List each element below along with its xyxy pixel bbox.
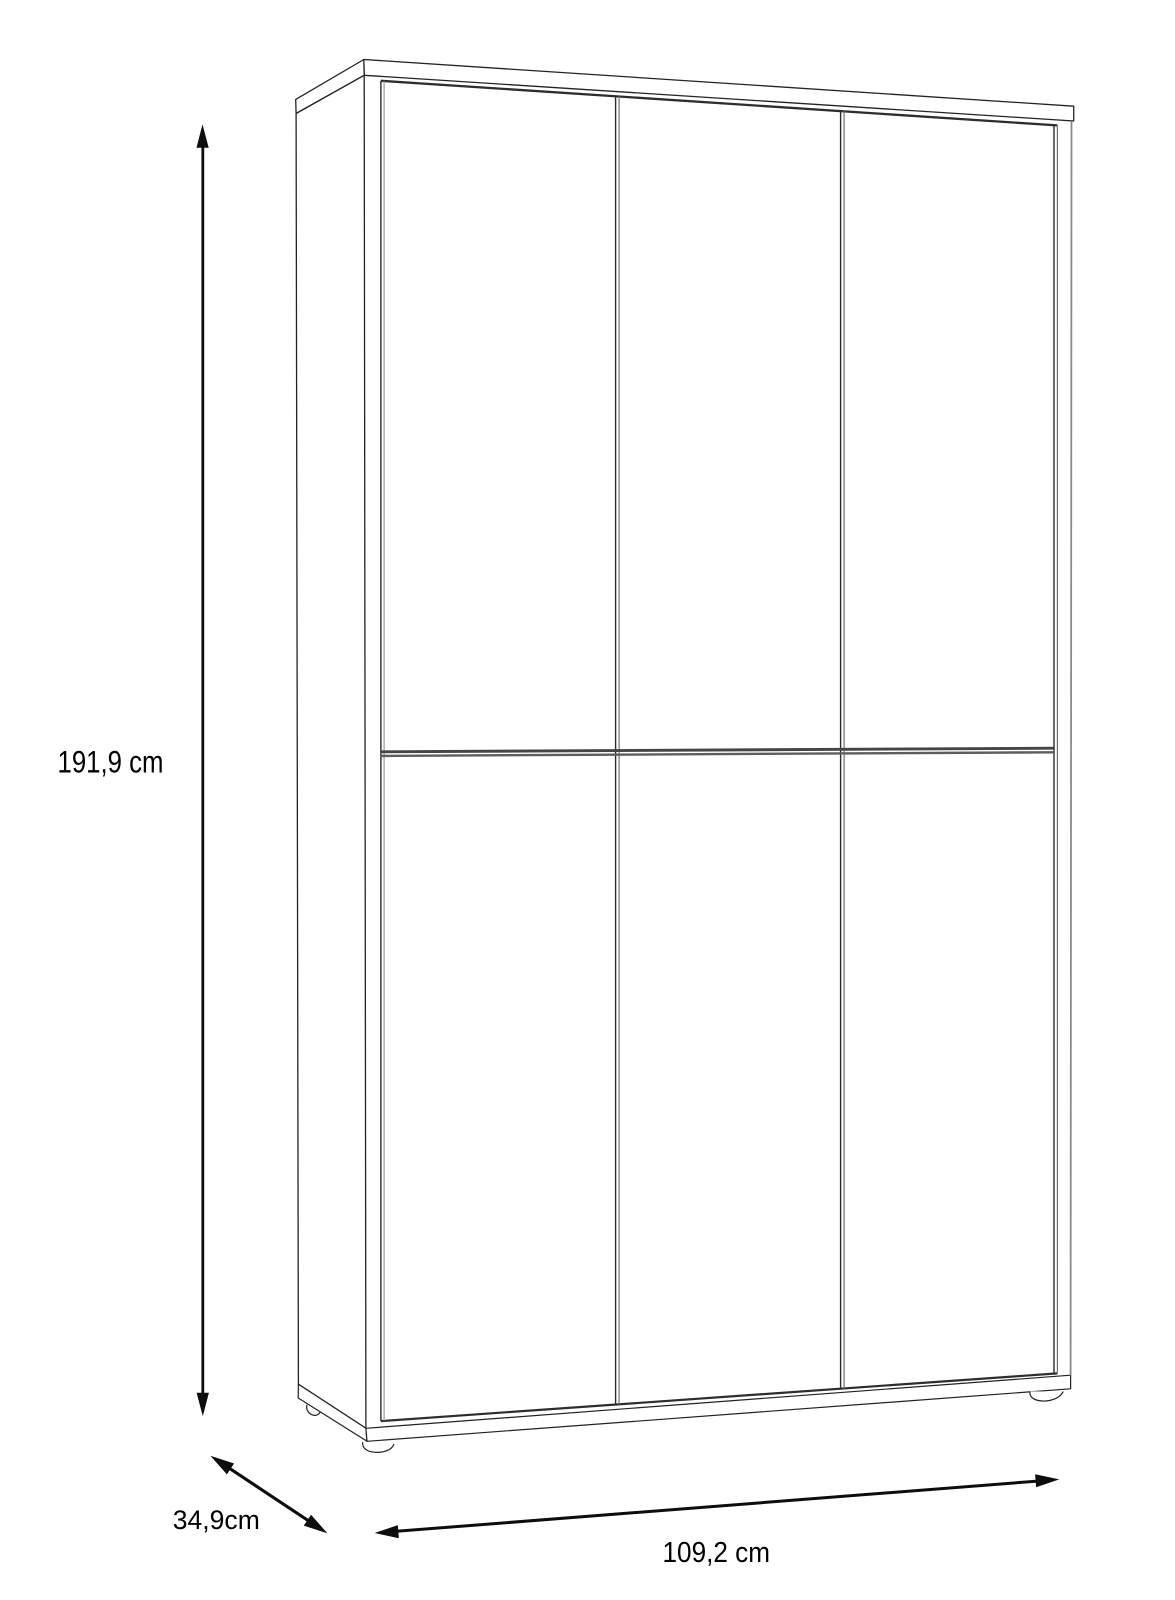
svg-text:109,2 cm: 109,2 cm (663, 1537, 771, 1569)
svg-text:191,9 cm: 191,9 cm (58, 743, 164, 779)
svg-text:34,9cm: 34,9cm (173, 1505, 260, 1535)
